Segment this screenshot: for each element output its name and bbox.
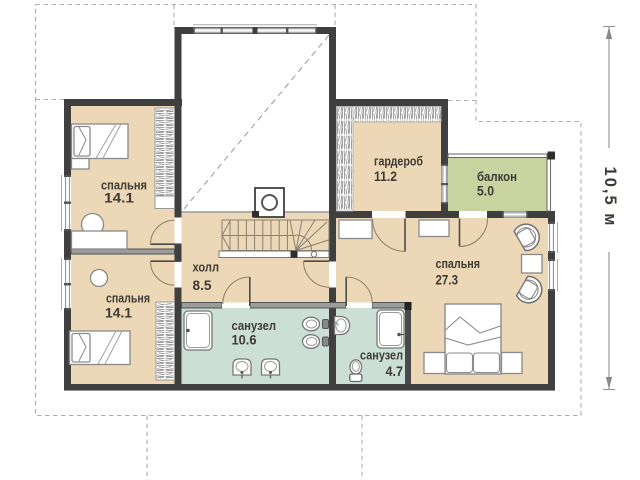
svg-text:холл: холл (193, 260, 220, 275)
svg-text:спальня: спальня (436, 256, 481, 271)
svg-text:10,5 м: 10,5 м (601, 167, 619, 228)
svg-text:гардероб: гардероб (374, 154, 423, 169)
svg-text:санузел: санузел (232, 318, 277, 333)
svg-text:10.6: 10.6 (232, 333, 257, 348)
svg-text:5.0: 5.0 (477, 184, 494, 199)
svg-text:11.2: 11.2 (374, 169, 397, 184)
svg-text:санузел: санузел (360, 348, 403, 363)
svg-text:14.1: 14.1 (104, 191, 135, 206)
svg-text:4.7: 4.7 (386, 364, 404, 379)
svg-text:27.3: 27.3 (436, 273, 459, 288)
svg-text:14.1: 14.1 (105, 306, 132, 321)
svg-text:балкон: балкон (477, 169, 517, 184)
svg-text:8.5: 8.5 (193, 278, 212, 293)
svg-text:спальня: спальня (106, 291, 150, 306)
